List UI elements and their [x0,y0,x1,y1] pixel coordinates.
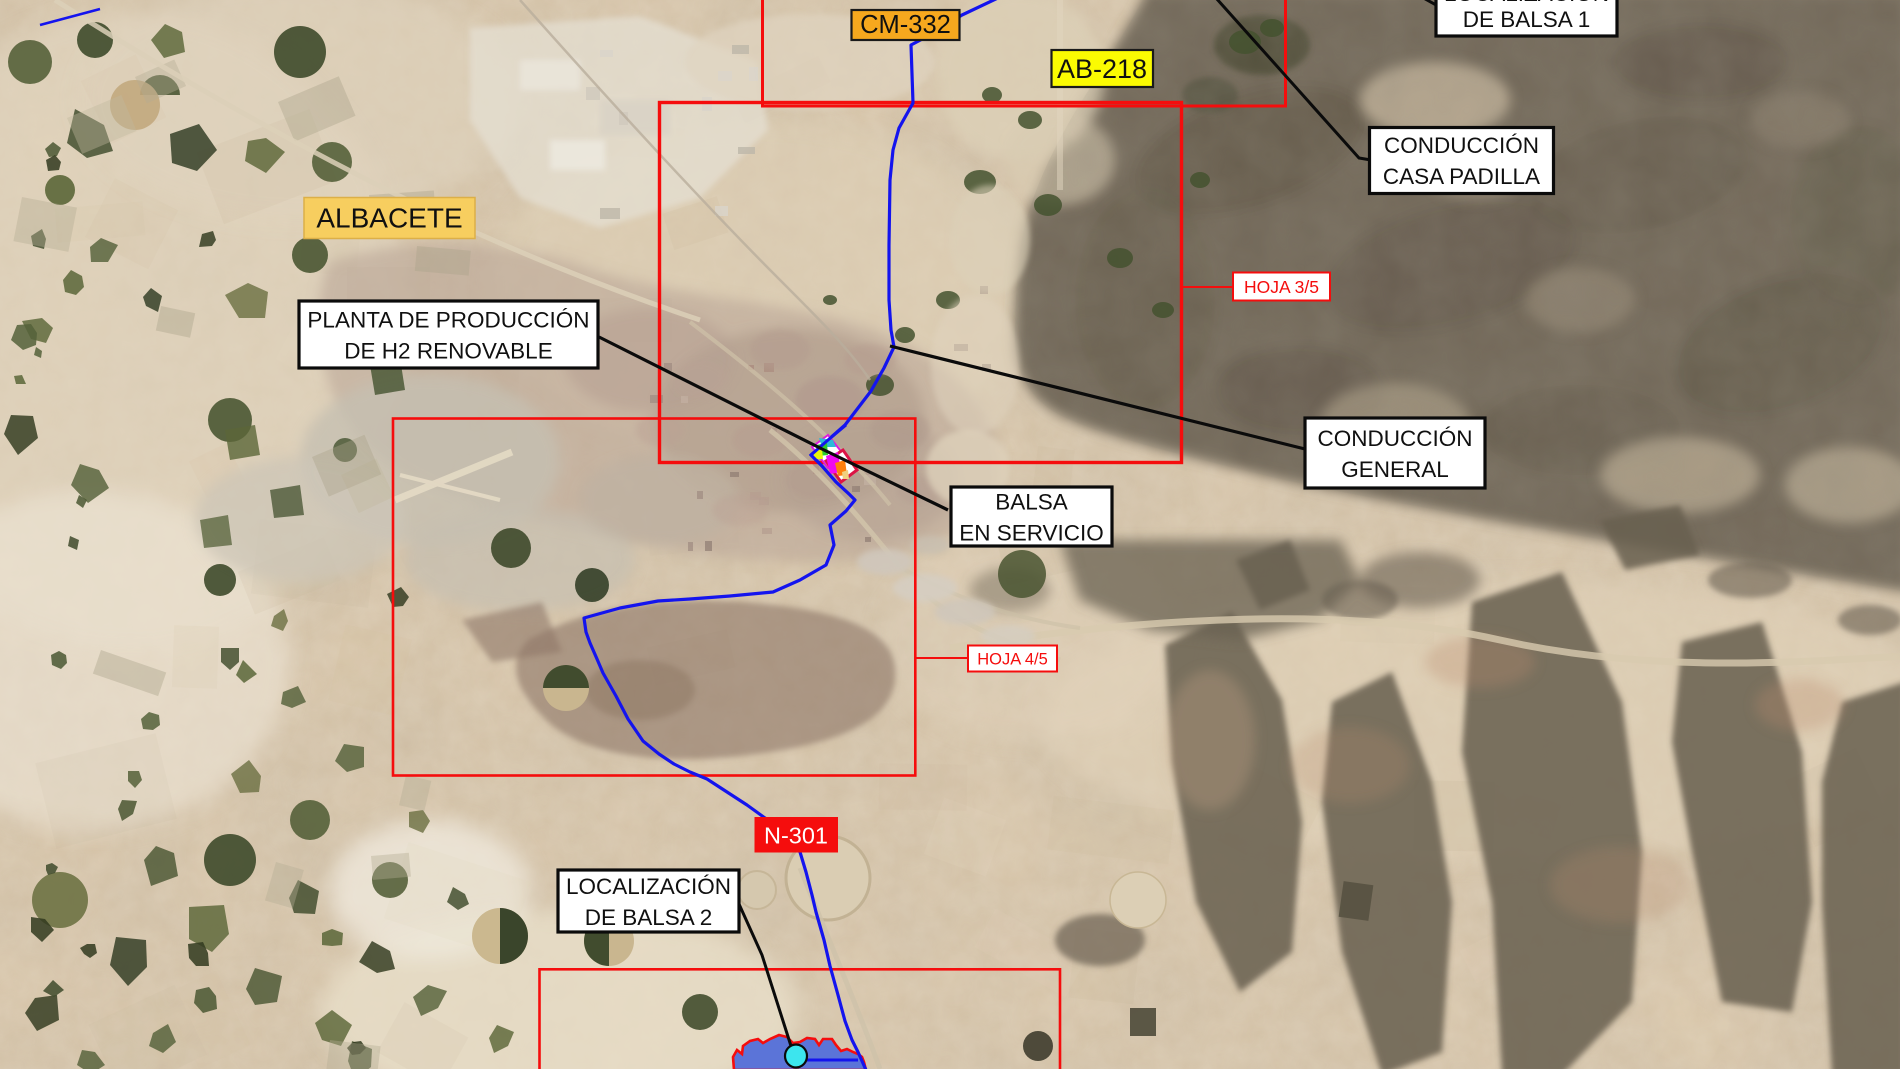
svg-text:CM-332: CM-332 [860,11,951,39]
svg-text:CONDUCCIÓN: CONDUCCIÓN [1384,133,1539,158]
svg-text:DE H2 RENOVABLE: DE H2 RENOVABLE [344,339,552,364]
svg-text:BALSA: BALSA [995,489,1068,514]
svg-text:PLANTA DE PRODUCCIÓN: PLANTA DE PRODUCCIÓN [307,308,589,333]
svg-text:DE BALSA 1: DE BALSA 1 [1463,7,1591,32]
svg-text:LOCALIZACIÓN: LOCALIZACIÓN [1444,0,1609,6]
svg-text:DE BALSA 2: DE BALSA 2 [585,905,713,930]
svg-text:HOJA 4/5: HOJA 4/5 [977,651,1048,669]
svg-text:CASA PADILLA: CASA PADILLA [1383,164,1540,189]
svg-text:N-301: N-301 [764,823,828,849]
svg-text:ALBACETE: ALBACETE [316,203,462,234]
svg-text:HOJA 3/5: HOJA 3/5 [1244,277,1319,297]
svg-text:AB-218: AB-218 [1057,54,1147,84]
svg-text:EN SERVICIO: EN SERVICIO [959,520,1104,545]
svg-text:LOCALIZACIÓN: LOCALIZACIÓN [566,874,731,899]
svg-text:CONDUCCIÓN: CONDUCCIÓN [1318,426,1473,451]
svg-text:GENERAL: GENERAL [1341,457,1449,482]
